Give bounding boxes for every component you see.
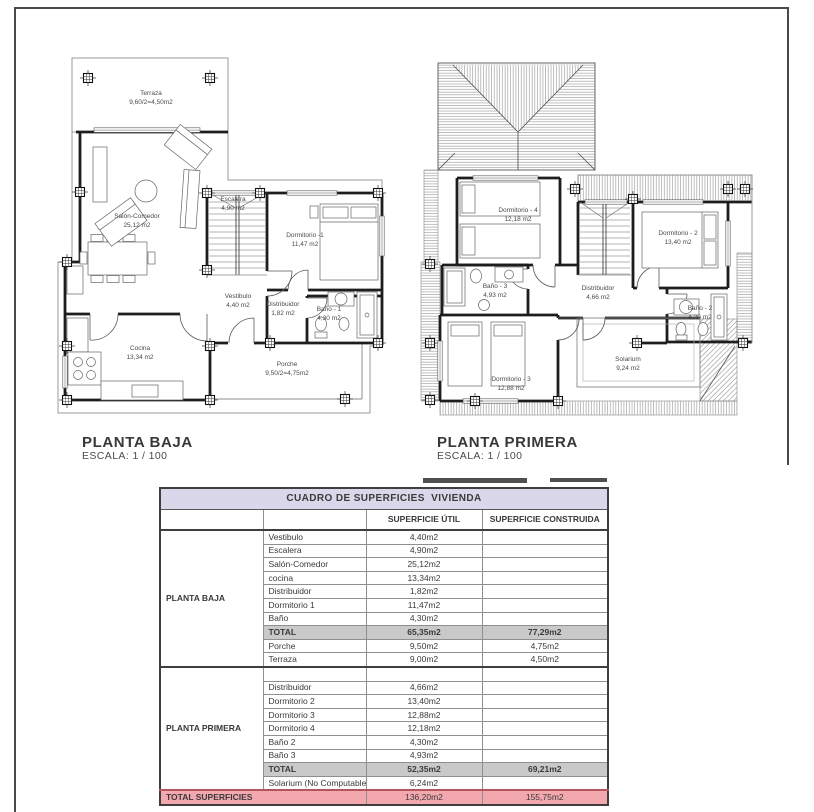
room-name: Escalera	[220, 196, 245, 205]
cell-construida	[482, 722, 608, 736]
grand-total-construida: 155,75m2	[482, 790, 608, 805]
room-name: Distribuidor	[267, 301, 300, 310]
room-name: Distribuidor	[582, 285, 615, 294]
room-area: 4,30 m2	[317, 315, 341, 324]
cell-name: Dormitorio 4	[263, 722, 366, 736]
cell-name: Distribuidor	[263, 585, 366, 599]
cell-util: 4,40m2	[366, 530, 482, 544]
table-row: PLANTA PRIMERA	[160, 667, 608, 681]
cell-name: Dormitorio 2	[263, 695, 366, 709]
grand-total-util: 136,20m2	[366, 790, 482, 805]
divider-bar	[550, 478, 607, 482]
room-name: Solarium	[615, 356, 641, 365]
room-label: Distribuidor4,66 m2	[582, 285, 615, 302]
room-label: Dormitorio - 412,18 m2	[498, 207, 537, 224]
surface-table-grid: CUADRO DE SUPERFICIES VIVIENDA SUPERFICI…	[159, 487, 609, 806]
cell-construida	[482, 695, 608, 709]
room-area: 12,18 m2	[504, 216, 531, 225]
plan-scale-planta-primera: ESCALA: 1 / 100	[437, 451, 522, 462]
cell-construida	[482, 776, 608, 790]
sheet-border-top	[14, 7, 788, 9]
cell-util: 65,35m2	[366, 626, 482, 640]
cell-construida	[482, 667, 608, 681]
cell-construida: 69,21m2	[482, 763, 608, 777]
col-header-superficie-construida: SUPERFICIE CONSTRUIDA	[482, 510, 608, 531]
table-title: CUADRO DE SUPERFICIES VIVIENDA	[160, 488, 608, 510]
cell-util: 1,82m2	[366, 585, 482, 599]
room-label: Escalera4,90 m2	[220, 196, 245, 213]
cell-util: 52,35m2	[366, 763, 482, 777]
room-name: Baño - 3	[483, 283, 508, 292]
divider-bar	[423, 478, 527, 483]
room-area: 12,88 m2	[497, 385, 524, 394]
cell-construida	[482, 571, 608, 585]
cell-util: 25,12m2	[366, 558, 482, 572]
cell-construida: 4,75m2	[482, 639, 608, 653]
room-name: Vestibulo	[225, 293, 251, 302]
room-label: Terraza9,60/2=4,50m2	[129, 90, 173, 107]
cell-util: 11,47m2	[366, 598, 482, 612]
floor-plan-planta-baja: Terraza9,60/2=4,50m2Salón-Comedor25,12 m…	[40, 56, 400, 416]
cell-name: Distribuidor	[263, 681, 366, 695]
cell-util: 9,00m2	[366, 653, 482, 667]
room-area: 13,40 m2	[664, 239, 691, 248]
plan-labels-0: Terraza9,60/2=4,50m2Salón-Comedor25,12 m…	[40, 56, 400, 416]
room-area: 13,34 m2	[126, 354, 153, 363]
room-area: 4,40 m2	[226, 302, 250, 311]
room-area: 9,24 m2	[616, 365, 640, 374]
cell-util: 12,18m2	[366, 722, 482, 736]
room-area: 25,12 m2	[123, 222, 150, 231]
room-area: 4,90 m2	[221, 205, 245, 214]
cell-name: Vestibulo	[263, 530, 366, 544]
room-label: Baño - 14,30 m2	[317, 306, 342, 323]
cell-util: 4,93m2	[366, 749, 482, 763]
room-name: Baño - 1	[317, 306, 342, 315]
room-name: Dormitorio - 3	[491, 376, 530, 385]
cell-name: Baño	[263, 612, 366, 626]
cell-construida	[482, 598, 608, 612]
cell-util: 6,24m2	[366, 776, 482, 790]
floor-name-cell: PLANTA BAJA	[160, 530, 263, 667]
cell-construida: 77,29m2	[482, 626, 608, 640]
room-area: 9,50/2=4,75m2	[265, 370, 309, 379]
sheet-border-left	[14, 7, 16, 812]
room-label: Vestibulo4,40 m2	[225, 293, 251, 310]
header-empty-cell	[263, 510, 366, 531]
cell-util: 9,50m2	[366, 639, 482, 653]
room-name: Dormitorio - 4	[498, 207, 537, 216]
cell-name: Solarium (No Computable)	[263, 776, 366, 790]
room-area: 4,30 m2	[688, 314, 712, 323]
room-name: Salón-Comedor	[114, 213, 160, 222]
cell-construida	[482, 585, 608, 599]
cell-util: 13,34m2	[366, 571, 482, 585]
plan-title-planta-primera: PLANTA PRIMERA	[437, 435, 578, 450]
room-label: Salón-Comedor25,12 m2	[114, 213, 160, 230]
cell-name: Baño 3	[263, 749, 366, 763]
room-area: 4,66 m2	[586, 294, 610, 303]
room-area: 11,47 m2	[292, 241, 319, 250]
room-label: Dormitorio -111,47 m2	[286, 232, 324, 249]
room-area: 4,93 m2	[483, 292, 507, 301]
cell-construida	[482, 708, 608, 722]
cell-name: TOTAL	[263, 763, 366, 777]
cell-name: Salón-Comedor	[263, 558, 366, 572]
cell-construida	[482, 681, 608, 695]
plan-scale-planta-baja: ESCALA: 1 / 100	[82, 451, 167, 462]
floor-name-cell: PLANTA PRIMERA	[160, 667, 263, 790]
cell-name	[263, 667, 366, 681]
room-label: Dormitorio - 213,40 m2	[658, 230, 697, 247]
header-empty-cell	[160, 510, 263, 531]
plan-title-planta-baja: PLANTA BAJA	[82, 435, 193, 450]
grand-total-row: TOTAL SUPERFICIES136,20m2155,75m2	[160, 790, 608, 805]
room-area: 1,82 m2	[271, 310, 295, 319]
room-label: Distribuidor1,82 m2	[267, 301, 300, 318]
room-label: Cocina13,34 m2	[126, 345, 153, 362]
grand-total-label: TOTAL SUPERFICIES	[160, 790, 366, 805]
cell-name: Dormitorio 1	[263, 598, 366, 612]
cell-name: TOTAL	[263, 626, 366, 640]
drawing-sheet: { "plans": [ { "title": "PLANTA BAJA", "…	[0, 0, 814, 812]
cell-name: Escalera	[263, 544, 366, 558]
cell-construida	[482, 558, 608, 572]
cell-construida: 4,50m2	[482, 653, 608, 667]
room-label: Baño - 34,93 m2	[483, 283, 508, 300]
room-label: Baño - 24,30 m2	[688, 305, 713, 322]
room-area: 9,60/2=4,50m2	[129, 99, 173, 108]
cell-name: cocina	[263, 571, 366, 585]
cell-util: 4,30m2	[366, 612, 482, 626]
cell-util: 4,30m2	[366, 735, 482, 749]
plan-labels-1: Dormitorio - 412,18 m2Dormitorio - 213,4…	[415, 56, 795, 416]
cell-construida	[482, 749, 608, 763]
room-label: Porche9,50/2=4,75m2	[265, 361, 309, 378]
cell-util: 12,88m2	[366, 708, 482, 722]
room-name: Terraza	[140, 90, 162, 99]
room-name: Baño - 2	[688, 305, 713, 314]
room-label: Solarium9,24 m2	[615, 356, 641, 373]
col-header-superficie-util: SUPERFICIE ÚTIL	[366, 510, 482, 531]
cell-name: Dormitorio 3	[263, 708, 366, 722]
cell-util: 4,66m2	[366, 681, 482, 695]
surface-table: CUADRO DE SUPERFICIES VIVIENDA SUPERFICI…	[159, 487, 607, 806]
room-name: Cocina	[130, 345, 150, 354]
room-name: Porche	[277, 361, 298, 370]
floor-plan-planta-primera: Dormitorio - 412,18 m2Dormitorio - 213,4…	[415, 56, 795, 416]
room-label: Dormitorio - 312,88 m2	[491, 376, 530, 393]
cell-construida	[482, 530, 608, 544]
room-name: Dormitorio - 2	[658, 230, 697, 239]
table-row: PLANTA BAJAVestibulo4,40m2	[160, 530, 608, 544]
cell-construida	[482, 544, 608, 558]
cell-construida	[482, 735, 608, 749]
cell-name: Baño 2	[263, 735, 366, 749]
cell-name: Porche	[263, 639, 366, 653]
room-name: Dormitorio -1	[286, 232, 324, 241]
cell-name: Terraza	[263, 653, 366, 667]
cell-util: 4,90m2	[366, 544, 482, 558]
cell-util: 13,40m2	[366, 695, 482, 709]
cell-construida	[482, 612, 608, 626]
cell-util	[366, 667, 482, 681]
